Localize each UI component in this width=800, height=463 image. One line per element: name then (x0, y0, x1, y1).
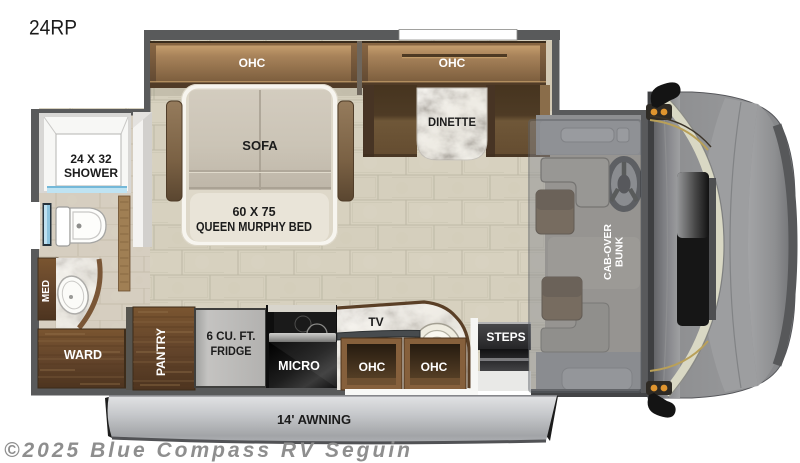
svg-text:OHC: OHC (439, 56, 466, 70)
svg-text:24RP: 24RP (29, 16, 77, 40)
svg-text:24 X 32: 24 X 32 (70, 152, 112, 166)
svg-text:MICRO: MICRO (278, 359, 320, 373)
svg-text:SHOWER: SHOWER (64, 166, 118, 180)
svg-text:OHC: OHC (359, 360, 386, 374)
svg-text:WARD: WARD (64, 348, 102, 362)
svg-text:TV: TV (368, 315, 383, 329)
svg-text:60 X 75: 60 X 75 (232, 205, 275, 219)
svg-text:STEPS: STEPS (486, 330, 525, 344)
svg-text:DINETTE: DINETTE (428, 115, 476, 129)
svg-text:QUEEN MURPHY BED: QUEEN MURPHY BED (196, 220, 312, 234)
svg-text:FRIDGE: FRIDGE (211, 344, 252, 358)
svg-text:OHC: OHC (421, 360, 448, 374)
svg-text:MED: MED (41, 280, 52, 302)
svg-text:14' AWNING: 14' AWNING (277, 412, 351, 427)
svg-text:OHC: OHC (239, 56, 266, 70)
svg-text:6 CU. FT.: 6 CU. FT. (207, 329, 256, 343)
svg-text:SOFA: SOFA (242, 138, 278, 153)
svg-text:PANTRY: PANTRY (154, 328, 168, 376)
